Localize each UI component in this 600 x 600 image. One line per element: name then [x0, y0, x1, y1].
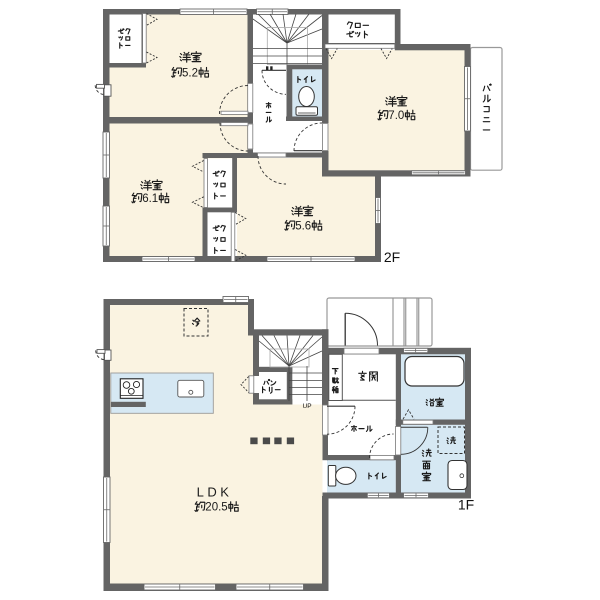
svg-text:UP: UP — [303, 403, 312, 410]
svg-text:1F: 1F — [458, 497, 474, 513]
svg-text:5.6: 5.6 — [295, 220, 311, 232]
svg-text:7.0: 7.0 — [388, 110, 404, 122]
svg-text:LDK: LDK — [197, 485, 233, 500]
svg-text:5.2: 5.2 — [182, 67, 198, 79]
svg-text:2F: 2F — [384, 249, 400, 265]
svg-text:20.5: 20.5 — [205, 502, 227, 514]
svg-text:6.1: 6.1 — [142, 193, 158, 205]
